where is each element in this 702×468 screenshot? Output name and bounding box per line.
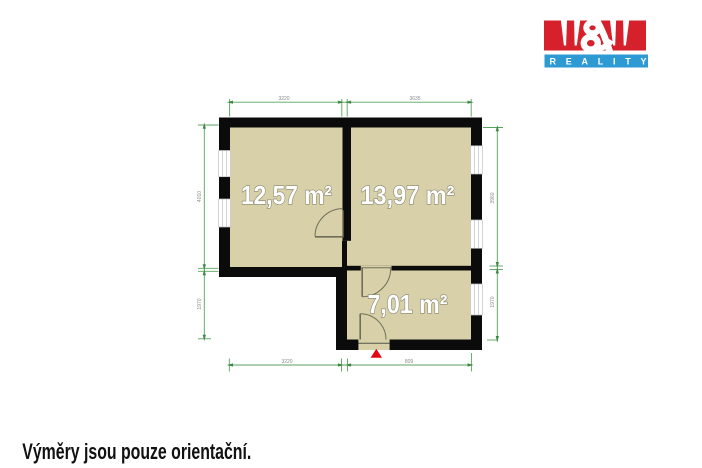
- svg-text:7,01 m²: 7,01 m²: [368, 291, 448, 319]
- svg-text:12,57 m²: 12,57 m²: [241, 182, 332, 210]
- svg-text:809: 809: [405, 359, 414, 365]
- svg-text:3220: 3220: [281, 359, 292, 365]
- svg-text:1970: 1970: [197, 298, 203, 309]
- svg-text:Výměry jsou pouze orientační.: Výměry jsou pouze orientační.: [22, 439, 251, 464]
- svg-text:13,97 m²: 13,97 m²: [361, 182, 455, 210]
- svg-text:4010: 4010: [197, 191, 203, 202]
- svg-text:3220: 3220: [278, 96, 289, 102]
- svg-text:3635: 3635: [409, 96, 420, 102]
- svg-text:3960: 3960: [490, 192, 496, 203]
- svg-text:1970: 1970: [490, 296, 496, 307]
